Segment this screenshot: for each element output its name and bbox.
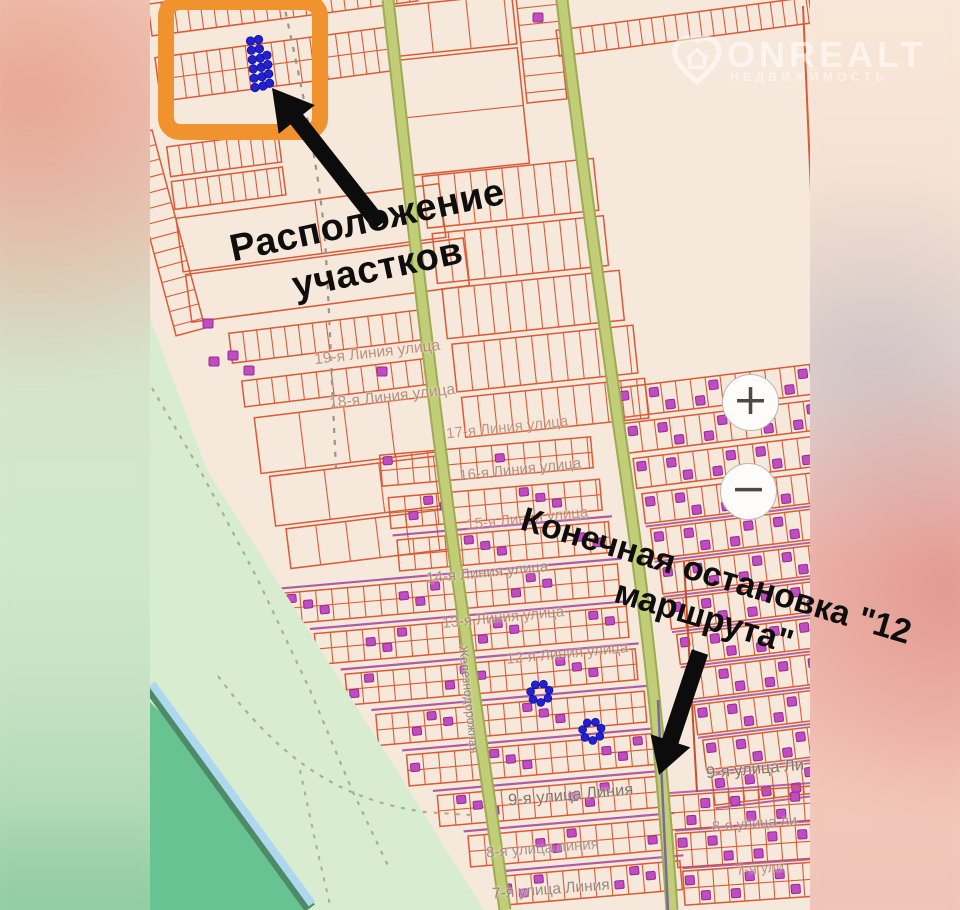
blurred-background-left — [0, 0, 150, 910]
zoom-out-icon: − — [730, 468, 766, 511]
zoom-out-button[interactable]: − — [720, 463, 777, 520]
screenshot-root: 19-я Линия улица18-я Линия улица17-я Лин… — [0, 0, 960, 910]
blurred-background-right — [810, 0, 960, 910]
onrealt-logo-tagline: НЕДВИЖИМОСТЬ — [730, 70, 888, 84]
zoom-in-button[interactable]: + — [722, 374, 779, 431]
zoom-in-icon: + — [732, 379, 768, 422]
onrealt-logo-icon — [670, 34, 724, 88]
